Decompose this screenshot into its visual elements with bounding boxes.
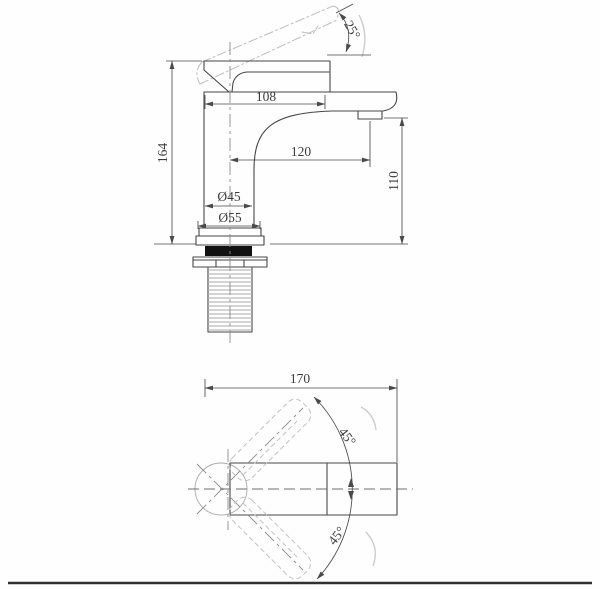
dim-label-170: 170 — [290, 371, 311, 386]
arc-mid-arrow-down — [348, 491, 354, 500]
dim-label-45-upper: 45° — [336, 425, 359, 449]
front-dimensions: 25° 108 164 120 110 Ø45 Ø55 — [154, 4, 408, 244]
dim-label-120: 120 — [291, 144, 312, 159]
dim-label-110: 110 — [386, 171, 401, 191]
faucet-technical-drawing: 25° 108 164 120 110 Ø45 Ø55 — [0, 0, 600, 589]
drawing-page: 25° 108 164 120 110 Ø45 Ø55 — [0, 0, 600, 589]
handle-lever-inner — [232, 72, 329, 92]
body-top-and-spout — [204, 92, 397, 111]
spout-underside — [254, 111, 358, 228]
dim-label-d55: Ø55 — [218, 210, 241, 225]
dim-label-108: 108 — [256, 89, 277, 104]
arc-mid-arrow-up — [348, 478, 354, 487]
aerator — [358, 111, 382, 119]
top-view: 170 45° 45° — [188, 371, 413, 583]
dim-label-d45: Ø45 — [217, 189, 240, 204]
handle-ghost-curve-lower — [366, 532, 375, 566]
handle-position-lower — [225, 493, 315, 583]
front-view: 25° 108 164 120 110 Ø45 Ø55 — [154, 4, 408, 346]
dim-label-164: 164 — [155, 143, 170, 164]
handle-position-upper — [225, 395, 315, 485]
handle-lever — [204, 61, 330, 92]
faucet-plan-outline — [188, 408, 413, 570]
handle-ghost-curve-upper — [361, 407, 376, 430]
dim-label-45-lower: 45° — [325, 524, 348, 548]
gasket — [205, 246, 252, 256]
top-dimensions: 170 — [205, 371, 397, 462]
swing-arc-group: 45° 45° — [314, 397, 359, 579]
